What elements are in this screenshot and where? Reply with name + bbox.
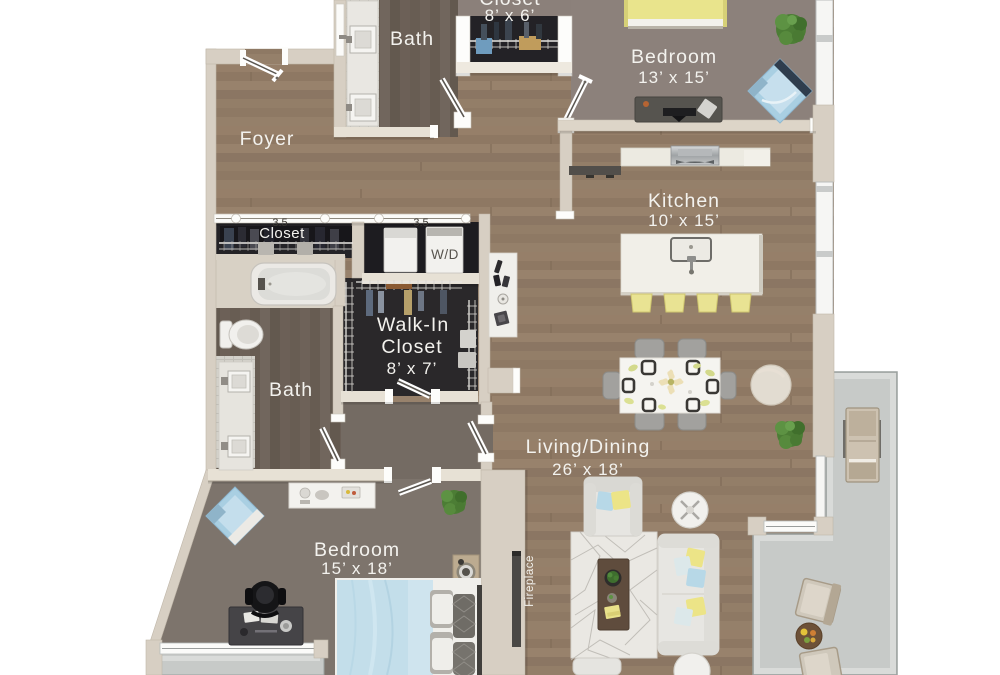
svg-text:Walk-In: Walk-In xyxy=(377,314,449,336)
svg-text:Bath: Bath xyxy=(390,28,434,50)
svg-text:Bedroom: Bedroom xyxy=(631,46,717,68)
svg-text:W/D: W/D xyxy=(431,247,459,262)
svg-text:Kitchen: Kitchen xyxy=(648,190,720,212)
svg-text:Bath: Bath xyxy=(269,379,313,401)
svg-text:Living/Dining: Living/Dining xyxy=(526,436,651,458)
svg-text:Foyer: Foyer xyxy=(240,128,295,150)
svg-text:8’ x 7’: 8’ x 7’ xyxy=(387,359,438,378)
svg-text:26’ x 18’: 26’ x 18’ xyxy=(552,460,624,479)
svg-text:8’ x 6’: 8’ x 6’ xyxy=(485,6,536,25)
svg-text:Closet: Closet xyxy=(259,225,305,242)
svg-text:15’ x 18’: 15’ x 18’ xyxy=(321,559,393,578)
svg-text:Fireplace: Fireplace xyxy=(524,555,536,607)
svg-text:10’ x 15’: 10’ x 15’ xyxy=(648,211,720,230)
svg-text:Bedroom: Bedroom xyxy=(314,539,400,561)
svg-text:Closet: Closet xyxy=(381,336,442,358)
svg-text:13’ x 15’: 13’ x 15’ xyxy=(638,68,710,87)
